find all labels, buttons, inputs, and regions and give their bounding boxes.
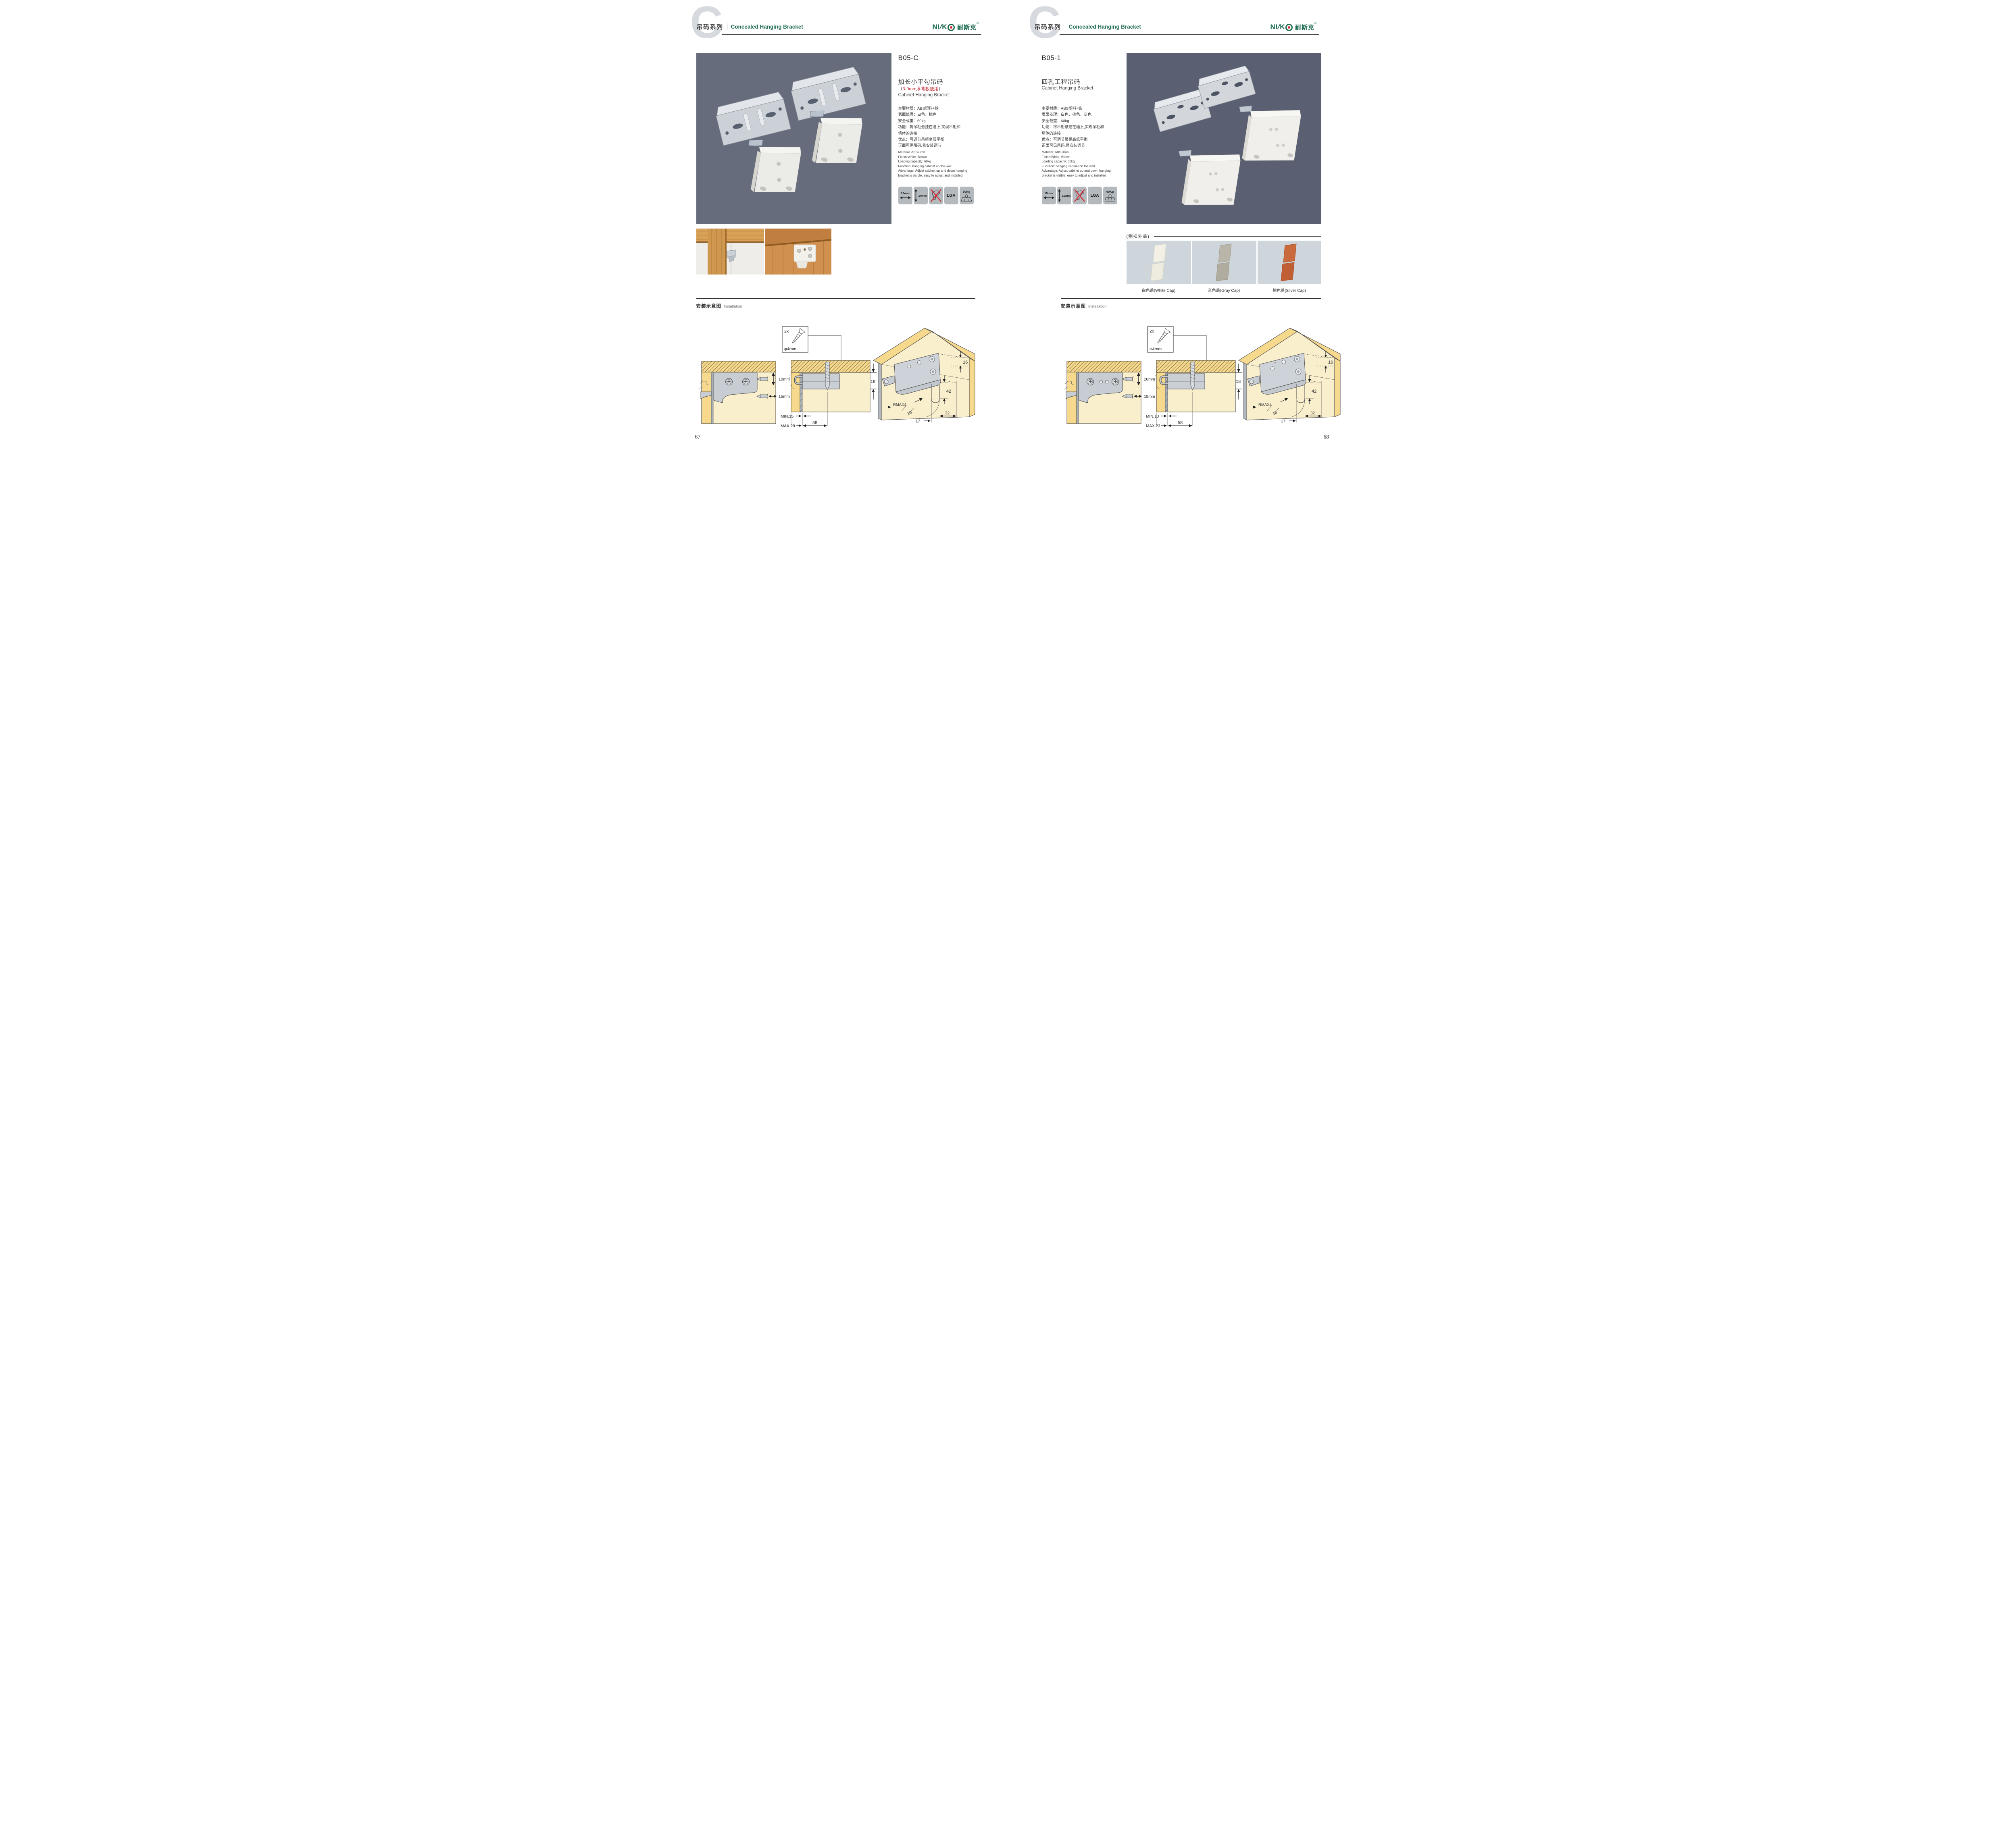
brand-cn: 耐斯克 [957, 23, 977, 31]
specs-zh: 主要材质：ABS塑料+铁 表面处理：白色、棕色 安全载重：60kg 功能：将吊柜… [898, 106, 961, 149]
product-photo [696, 53, 891, 224]
page-left: C 吊码系列 Concealed Hanging Bracket NI / K … [670, 0, 1008, 462]
page-number: 67 [695, 434, 701, 440]
icon-label: 60Kg [1106, 190, 1114, 193]
application-photo-hook [696, 229, 764, 275]
height-adjust-icon: 10mm [914, 187, 928, 204]
page-header: 吊码系列 Concealed Hanging Bracket [1035, 23, 1141, 31]
product-code: B05-1 [1042, 54, 1061, 62]
dimension-label: 42 [1312, 389, 1316, 394]
brand-logo: NI / K 耐斯克 ® [1270, 23, 1317, 31]
screw-icon [1112, 379, 1118, 385]
installation-diagram-perspective: 16 42 RMAX4 16 17 32 [1236, 319, 1343, 426]
spec-line: 功能：将吊柜悬挂在墙上,实现吊柜和 [898, 124, 961, 130]
installation-diagram-dimensions: 2x φ4mm 18 [1145, 325, 1242, 430]
spec-line: 优点：可调节吊柜高低平衡 [1042, 137, 1104, 143]
dimension-label: RMAX4 [1258, 403, 1272, 407]
product-name-en: Cabinet Hanging Bracket [898, 93, 950, 98]
dimension-label: 58 [812, 420, 817, 425]
header-rule [722, 34, 981, 35]
feature-icons: 15mm 10mm LGA 60Kg [1042, 187, 1117, 204]
vertical-arrow-icon [1058, 189, 1061, 202]
spec-line: 优点：可调节吊柜高低平衡 [898, 137, 961, 143]
application-photo-bracket [765, 229, 831, 275]
dimension-label: 16 [963, 360, 968, 365]
spec-line: 安全载重：60kg [1042, 118, 1104, 124]
spec-line: Finish:White, Brown [898, 155, 967, 160]
width-adjust-icon: 15mm [1042, 187, 1056, 204]
dimension-label: 16 [1328, 360, 1333, 365]
brand-o-icon [948, 24, 955, 31]
series-title-zh: 吊码系列 [697, 23, 723, 31]
no-drill-icon [929, 187, 943, 204]
cap-silver [1258, 241, 1321, 286]
spec-line: bracket is visible, easy to adjust and i… [1042, 173, 1111, 178]
screw-qty-label: 2x [784, 329, 789, 334]
product-name-zh: 四孔工程吊码 [1042, 77, 1081, 86]
spec-line: 墙体的连接 [898, 131, 961, 137]
product-note: （3-9mm厚背板使用） [898, 85, 943, 92]
installation-title-zh: 安装示意图 [696, 303, 722, 309]
application-photos [696, 229, 831, 275]
caps-rule [1154, 236, 1321, 237]
brand-o-icon [1285, 24, 1293, 31]
dimension-label: MIN.15 [781, 414, 794, 419]
icon-label: 15mm [1044, 191, 1053, 195]
height-adjust-icon: 10mm [1057, 187, 1071, 204]
icon-label: 15mm [901, 191, 910, 195]
spec-line: Loading capacity: 60kg [898, 159, 967, 164]
screw-dia-label: φ4mm [1150, 347, 1162, 352]
dimension-label: RMAX4 [893, 403, 906, 407]
dimension-label: 32 [1310, 411, 1315, 416]
dimension-label: MAX.23 [1146, 424, 1160, 428]
spec-line: Advantage: Adjust cabinet up and down ha… [1042, 168, 1111, 173]
dimension-label: 32 [945, 411, 950, 416]
spec-line: 功能：将吊柜悬挂在墙上,实现吊柜和 [1042, 124, 1104, 130]
catalog-spread: C 吊码系列 Concealed Hanging Bracket NI / K … [670, 0, 1346, 462]
load-capacity-icon: 60Kg [960, 187, 974, 204]
installation-rule [696, 298, 975, 299]
page-header: 吊码系列 Concealed Hanging Bracket [697, 23, 803, 31]
header-divider [1065, 23, 1065, 30]
dimension-label: 17 [915, 419, 920, 424]
horizontal-arrow-icon [900, 196, 911, 200]
screw-dia-label: φ4mm [784, 347, 796, 352]
lga-cert-icon: LGA [944, 187, 958, 204]
installation-diagram-dimensions: 2x φ4mm 18 [780, 325, 877, 430]
cap-white [1127, 241, 1191, 286]
product-name-zh: 加长小平勾吊码 [898, 77, 943, 86]
load-capacity-icon: 60Kg [1103, 187, 1117, 204]
cap-gray [1192, 241, 1256, 286]
dimension-label: 17 [1281, 419, 1285, 424]
spec-line: 墙体的连接 [1042, 131, 1104, 137]
product-code: B05-C [898, 54, 919, 62]
horizontal-arrow-icon [1043, 196, 1054, 200]
dimension-label: 58 [1178, 420, 1183, 425]
header-rule [1060, 34, 1319, 35]
spec-line: Material: ABS+Iron [898, 150, 967, 155]
installation-title: 安装示意图 Installation [696, 303, 742, 309]
spec-line: 正面可见吊码,易安装调节 [898, 143, 961, 149]
page-number: 68 [1324, 434, 1329, 440]
header-divider [727, 23, 727, 30]
product-photo [1127, 53, 1321, 224]
series-title-en: Concealed Hanging Bracket [731, 24, 803, 30]
icon-label: LGA [1090, 193, 1099, 198]
installation-title-en: Installation [724, 304, 742, 309]
installation-diagram-perspective: 16 42 RMAX4 16 17 32 [871, 319, 978, 426]
cap-label: 灰色盖(Gray Cap) [1192, 287, 1256, 293]
specs-zh: 主要材质：ABS塑料+铁 表面处理：白色、棕色、灰色 安全载重：60kg 功能：… [1042, 106, 1104, 149]
installation-rule [1061, 298, 1321, 299]
brand-reg: ® [977, 22, 979, 25]
no-drill-icon [1073, 187, 1087, 204]
brand-reg: ® [1314, 22, 1316, 25]
dimension-label: MIN.10 [1146, 414, 1159, 419]
cap-label: 白色盖(White Cap) [1127, 287, 1191, 293]
dimension-label: 42 [946, 389, 951, 394]
spec-line: 主要材质：ABS塑料+铁 [898, 106, 961, 112]
product-name-en: Cabinet Hanging Bracket [1042, 86, 1093, 91]
installation-diagram-section: 10mm 15mm [1062, 355, 1159, 426]
brand-cn: 耐斯克 [1295, 23, 1314, 31]
spec-line: Loading capacity: 60kg [1042, 159, 1111, 164]
weight-icon [961, 194, 972, 202]
caps-title: (侧扣外盖) [1127, 233, 1150, 239]
screw-icon [725, 379, 732, 385]
installation-title-en: Installation [1088, 304, 1106, 309]
series-title-zh: 吊码系列 [1035, 23, 1061, 31]
screw-icon [1087, 379, 1093, 385]
note-red-text: 3-9mm厚背板使用 [903, 87, 939, 92]
spec-line: Function: hanging cabinet on the wall [1042, 164, 1111, 169]
weight-icon [1105, 194, 1115, 202]
cap-label: 棕色盖(Silver Cap) [1258, 287, 1321, 293]
series-title-en: Concealed Hanging Bracket [1069, 24, 1141, 30]
installation-diagram-section: 10mm 15mm [697, 355, 793, 426]
screw-icon [742, 379, 749, 385]
specs-en: Material: ABS+Iron Finish:White, Brown L… [1042, 150, 1111, 178]
width-adjust-icon: 15mm [898, 187, 912, 204]
icon-label: LGA [947, 193, 955, 198]
installation-title-zh: 安装示意图 [1061, 303, 1086, 309]
icon-label: 10mm [1062, 194, 1071, 198]
spec-line: Finish:White, Brown [1042, 155, 1111, 160]
spec-line: Function: hanging cabinet on the wall [898, 164, 967, 169]
vertical-arrow-icon [914, 189, 918, 202]
screw-qty-label: 2x [1150, 329, 1154, 334]
spec-line: 安全载重：60kg [898, 118, 961, 124]
spec-line: bracket is visible, easy to adjust and i… [898, 173, 967, 178]
page-right: C 吊码系列 Concealed Hanging Bracket NI / K … [1008, 0, 1346, 462]
dimension-label: MAX.28 [781, 424, 795, 428]
feature-icons: 15mm 10mm LGA 60Kg [898, 187, 974, 204]
brand-logo: NI / K 耐斯克 ® [933, 23, 979, 31]
lga-cert-icon: LGA [1088, 187, 1102, 204]
spec-line: 主要材质：ABS塑料+铁 [1042, 106, 1104, 112]
spec-line: 正面可见吊码,易安装调节 [1042, 143, 1104, 149]
spec-line: 表面处理：白色、棕色 [898, 112, 961, 118]
spec-line: Material: ABS+Iron [1042, 150, 1111, 155]
spec-line: Advantage: Adjust cabinet up and down ha… [898, 168, 967, 173]
installation-title: 安装示意图 Installation [1061, 303, 1107, 309]
spec-line: 表面处理：白色、棕色、灰色 [1042, 112, 1104, 118]
icon-label: 10mm [918, 194, 927, 198]
icon-label: 60Kg [963, 190, 970, 193]
specs-en: Material: ABS+Iron Finish:White, Brown L… [898, 150, 967, 178]
